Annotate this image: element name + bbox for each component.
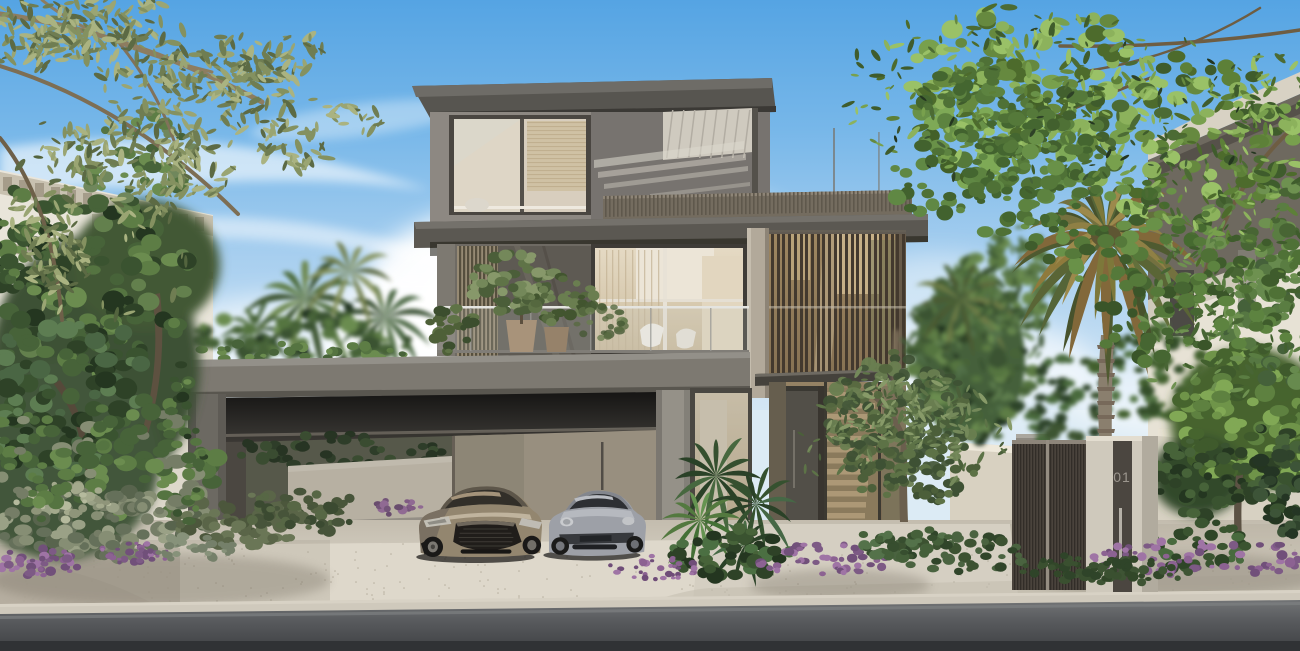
svg-text:01: 01 [1113, 469, 1131, 485]
